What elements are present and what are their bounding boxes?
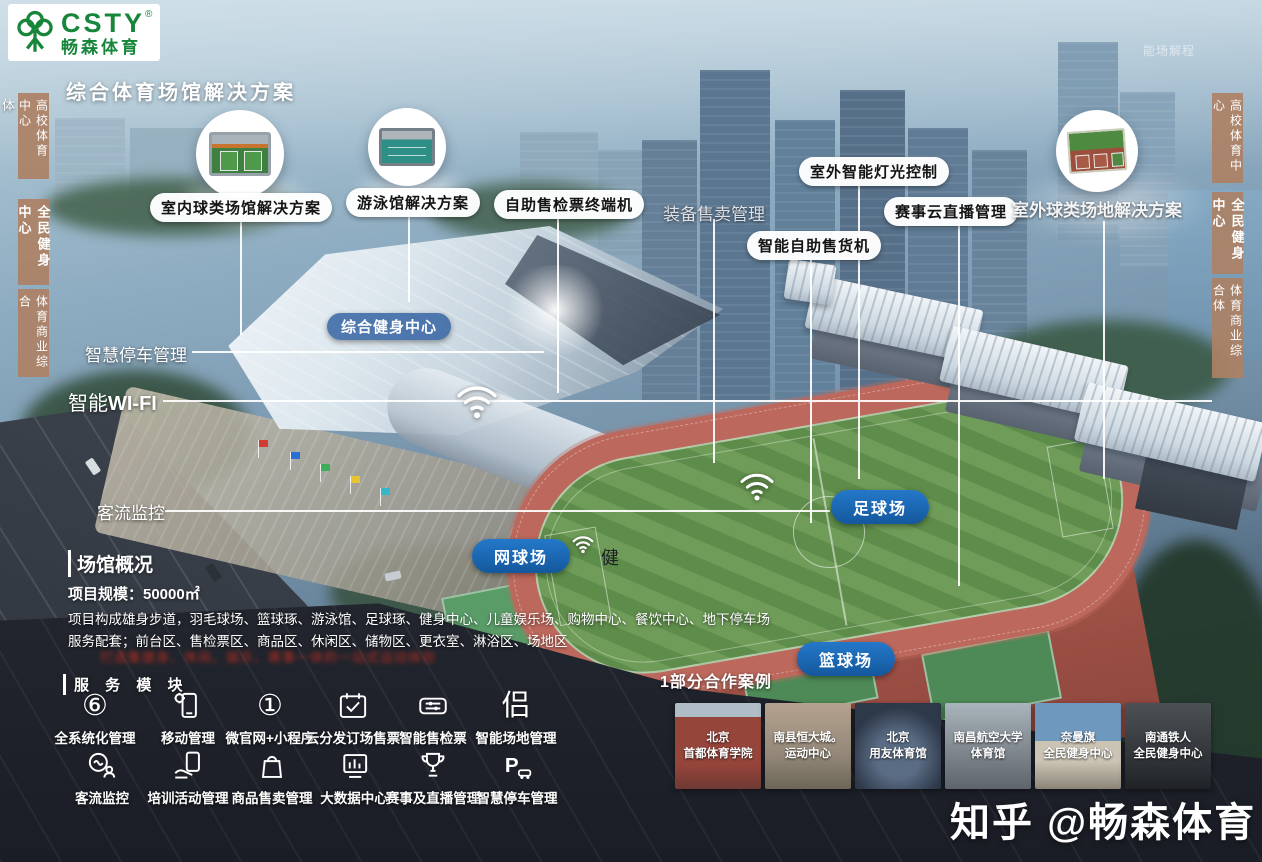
wifi-icon [570, 531, 596, 557]
callout-cloud-broadcast: 赛事云直播管理 [884, 197, 1018, 226]
left-tab-public-fitness: 全民健身中心 [18, 199, 49, 285]
module-label: 智慧停车管理 [457, 787, 577, 807]
case-name: 全民健身中心 [1044, 746, 1113, 762]
module-label: 智能场地管理 [456, 727, 576, 747]
right-tab-public-fitness: 全民健身中心 [1212, 192, 1243, 274]
case-name: 用友体育馆 [869, 746, 927, 762]
case-name: 全民健身中心 [1134, 746, 1203, 762]
label-fitness-center: 综合健身中心 [327, 313, 451, 340]
label-football-field: 足球场 [831, 490, 929, 524]
couple-glyph-icon: 侣 [456, 688, 576, 724]
faint-watermark-text: 能场解程 [1143, 42, 1195, 59]
red-slogan-blurred: 打造集健身、休闲、娱乐、赛事一体的一站式运动体验 [100, 647, 436, 666]
right-tab-sports-commerce: 体育商业综合体 [1212, 278, 1243, 378]
callout-equipment-sale: 装备售卖管理 [663, 200, 765, 225]
outdoor-ball-venue-image [1056, 110, 1138, 192]
poster: CSTY® 畅森体育 综合体育场馆解决方案 能场解程 体 高校体育中心 全民健身… [0, 0, 1262, 862]
overview-heading: 场馆概况 [68, 550, 153, 577]
zhihu-watermark: 知乎 @畅森体育 [950, 790, 1256, 848]
brand-logo: CSTY® 畅森体育 [8, 4, 160, 61]
project-scale: 项目规模：50000㎡ [68, 583, 200, 604]
case-name: 北京 [707, 730, 730, 746]
callout-smart-wifi: 智能WI-FI [68, 387, 157, 416]
tree-logo-icon [14, 10, 56, 56]
case-card: 北京 用友体育馆 [855, 703, 941, 789]
case-card: 北京 首都体育学院 [675, 703, 761, 789]
svg-text:P: P [505, 754, 519, 777]
case-card: 南县恒大城。 运动中心 [765, 703, 851, 789]
left-tab-sports-commerce: 体育商业综合 [18, 289, 49, 377]
case-name: 首都体育学院 [684, 746, 753, 762]
callout-line [163, 400, 1212, 402]
case-name: 南县恒大城。 [774, 730, 843, 746]
page-title: 综合体育场馆解决方案 [66, 76, 296, 105]
callout-line [240, 222, 242, 335]
case-name: 南昌航空大学 [954, 730, 1023, 746]
callout-smart-parking: 智慧停车管理 [85, 341, 187, 366]
logo-text: CSTY [61, 8, 145, 38]
case-name: 奈曼旗 [1061, 730, 1096, 746]
registered-mark: ® [145, 9, 152, 20]
label-tennis-court: 网球场 [472, 539, 570, 573]
case-card: 南通铁人 全民健身中心 [1125, 703, 1211, 789]
callout-indoor-ball: 室内球类场馆解决方案 [150, 193, 332, 222]
flag [321, 464, 330, 471]
parking-car-icon: P [457, 748, 577, 784]
case-name: 运动中心 [785, 746, 831, 762]
module-venue-management: 侣 智能场地管理 [456, 688, 576, 747]
callout-line [958, 223, 960, 586]
module-smart-parking: P 智慧停车管理 [457, 748, 577, 807]
arena-sun-glint [495, 265, 615, 355]
callout-outdoor-light: 室外智能灯光控制 [799, 157, 949, 186]
callout-visitor-monitor: 客流监控 [97, 499, 165, 524]
flag [351, 476, 360, 483]
wifi-icon [736, 465, 778, 507]
callout-ticket-terminal: 自助售检票终端机 [494, 190, 644, 219]
flag [381, 488, 390, 495]
callout-outdoor-ball: 室外球类场地解决方案 [1012, 196, 1182, 221]
case-card: 南昌航空大学 体育馆 [945, 703, 1031, 789]
smart-wifi-en: WI-FI [108, 393, 157, 415]
swimming-venue-image [368, 108, 446, 186]
callout-swimming: 游泳馆解决方案 [346, 188, 480, 217]
callout-line [192, 351, 544, 353]
logo-chinese-name: 畅森体育 [61, 39, 152, 56]
callout-vending: 智能自助售货机 [747, 231, 881, 260]
case-name: 体育馆 [971, 746, 1006, 762]
callout-line [713, 219, 715, 463]
callout-line [408, 214, 410, 302]
left-tab-college-sports: 高校体育中心 [18, 93, 49, 179]
case-name: 北京 [887, 730, 910, 746]
project-composition: 项目构成雄身步道，羽毛球场、篮球琢、游泳馆、足球琢、健身中心、儿童娱乐场、购物中… [68, 608, 770, 628]
cases-heading: 1部分合作案例 [660, 668, 772, 692]
indoor-ball-venue-image [196, 110, 284, 198]
right-tab-college-sports: 高校体育中心 [1212, 93, 1243, 183]
jian-character: 健 [601, 544, 619, 570]
label-basketball-court: 篮球场 [797, 642, 895, 676]
callout-line [810, 256, 812, 523]
callout-line [557, 217, 559, 393]
case-card: 奈曼旗 全民健身中心 [1035, 703, 1121, 789]
case-name: 南通铁人 [1145, 730, 1191, 746]
edge-partial-character: 体 [2, 95, 15, 114]
flag [291, 452, 300, 459]
callout-line [165, 510, 830, 512]
callout-line [858, 181, 860, 479]
callout-line [1103, 221, 1105, 479]
wifi-icon [452, 376, 502, 426]
flag [259, 440, 268, 447]
smart-wifi-cn: 智能 [68, 393, 108, 415]
